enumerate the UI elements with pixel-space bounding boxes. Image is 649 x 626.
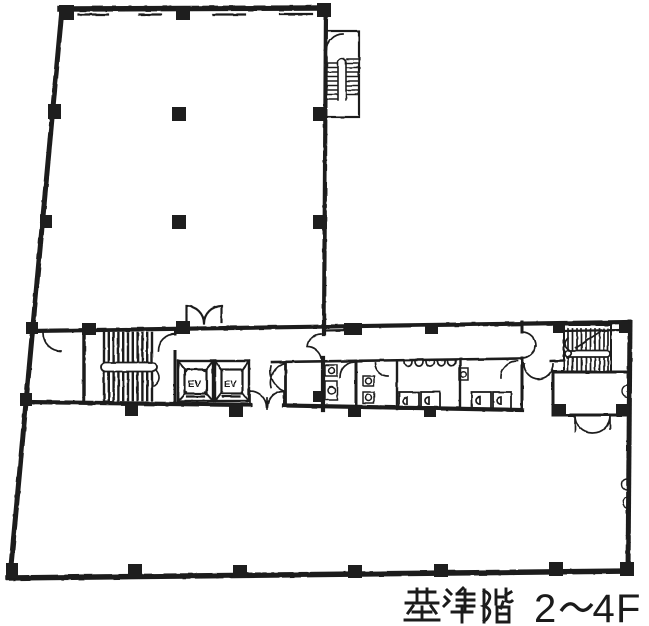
svg-text:EV: EV <box>188 379 201 390</box>
svg-text:4: 4 <box>593 587 615 626</box>
svg-text:2: 2 <box>534 587 556 626</box>
svg-text:F: F <box>616 587 640 626</box>
svg-text:EV: EV <box>224 379 237 390</box>
